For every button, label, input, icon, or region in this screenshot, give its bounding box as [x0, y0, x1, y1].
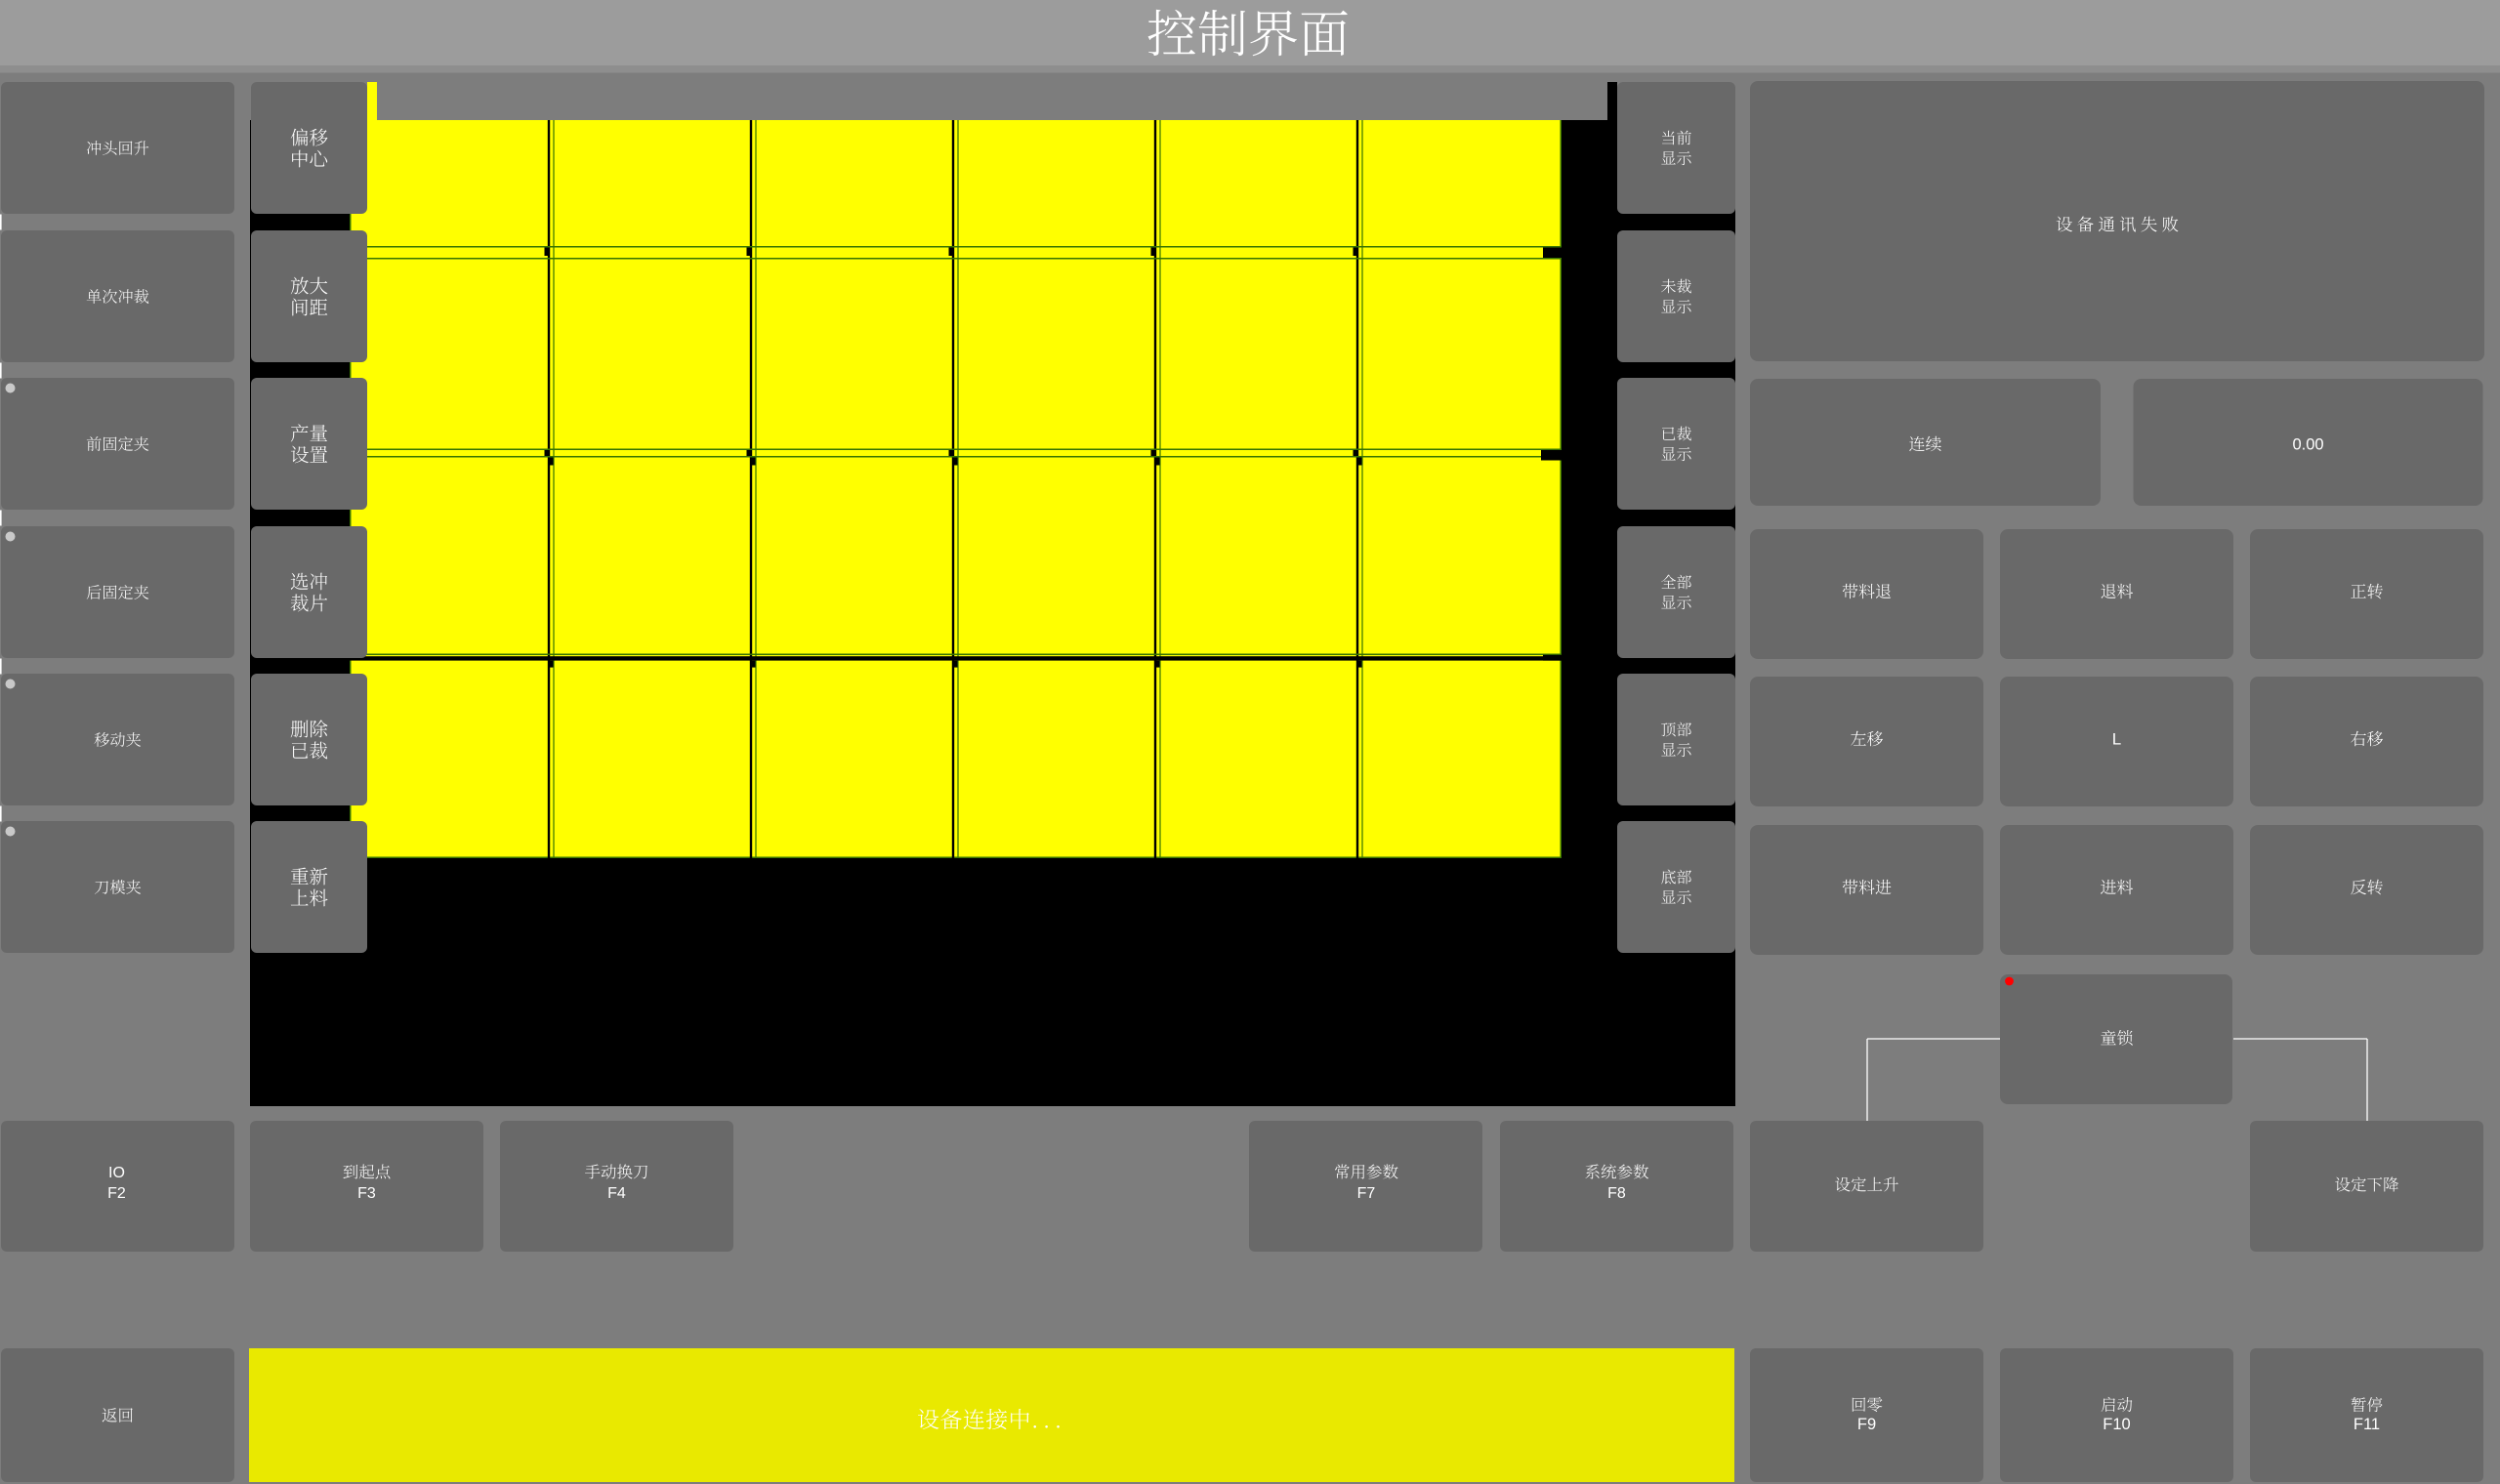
svg-text:F7: F7 — [1357, 1185, 1376, 1202]
svg-text:L: L — [2112, 730, 2121, 749]
svg-text:0.00: 0.00 — [2292, 436, 2323, 454]
svg-text:F4: F4 — [607, 1185, 626, 1202]
svg-text:IO: IO — [108, 1165, 125, 1181]
svg-text:F3: F3 — [357, 1185, 376, 1202]
svg-text:F8: F8 — [1607, 1185, 1626, 1202]
svg-text:F9: F9 — [1857, 1416, 1876, 1433]
svg-text:F10: F10 — [2103, 1416, 2130, 1433]
svg-text:F11: F11 — [2354, 1416, 2380, 1433]
svg-text:F2: F2 — [107, 1185, 126, 1202]
